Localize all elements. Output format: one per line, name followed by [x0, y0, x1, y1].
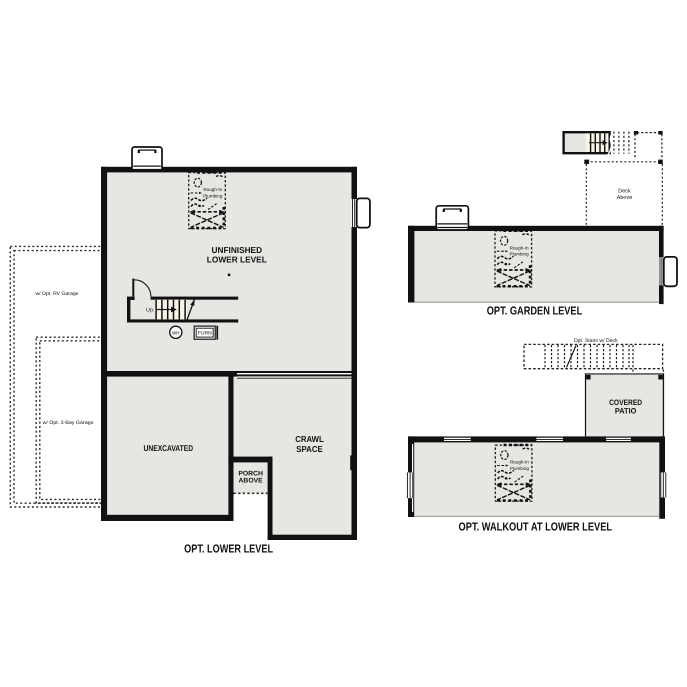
- svg-text:w/ Opt. 3-Bay Garage: w/ Opt. 3-Bay Garage: [43, 420, 94, 426]
- svg-text:UNEXCAVATED: UNEXCAVATED: [144, 443, 194, 453]
- svg-text:Above: Above: [617, 195, 633, 201]
- svg-text:OPT. GARDEN LEVEL: OPT. GARDEN LEVEL: [487, 305, 583, 318]
- svg-text:Up: Up: [146, 308, 153, 314]
- svg-text:PORCH: PORCH: [238, 470, 263, 477]
- svg-text:PATIO: PATIO: [615, 406, 637, 415]
- svg-text:FURN: FURN: [198, 331, 212, 337]
- svg-text:Opt. Stairs w/ Deck: Opt. Stairs w/ Deck: [574, 338, 618, 344]
- svg-text:OPT. WALKOUT AT LOWER LEVEL: OPT. WALKOUT AT LOWER LEVEL: [459, 520, 613, 533]
- svg-text:CRAWL: CRAWL: [295, 434, 324, 444]
- svg-text:Deck: Deck: [618, 188, 631, 194]
- svg-text:w/ Opt. RV Garage: w/ Opt. RV Garage: [36, 291, 79, 297]
- svg-text:SPACE: SPACE: [296, 444, 323, 454]
- svg-text:ABOVE: ABOVE: [239, 478, 264, 485]
- svg-text:LOWER LEVEL: LOWER LEVEL: [207, 255, 267, 265]
- svg-text:OPT. LOWER LEVEL: OPT. LOWER LEVEL: [184, 542, 273, 555]
- svg-text:WH: WH: [172, 330, 180, 335]
